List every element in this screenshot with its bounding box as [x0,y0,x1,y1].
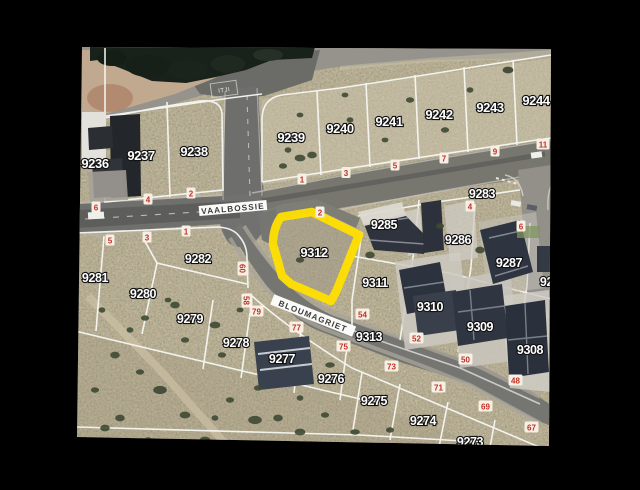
svg-text:77: 77 [292,324,301,333]
svg-text:9280: 9280 [130,287,157,301]
svg-text:69: 69 [481,403,490,412]
svg-text:9242: 9242 [425,107,452,122]
svg-text:9241: 9241 [375,114,402,129]
svg-text:6: 6 [94,204,99,213]
svg-text:9236: 9236 [81,156,108,171]
svg-text:9279: 9279 [177,312,204,326]
svg-text:9244: 9244 [522,93,550,108]
svg-text:9274: 9274 [410,414,437,428]
svg-text:9: 9 [493,148,498,157]
svg-text:11: 11 [539,141,548,150]
svg-text:9287: 9287 [496,256,523,270]
svg-text:60: 60 [238,264,247,273]
svg-text:1: 1 [300,176,305,185]
svg-text:9312: 9312 [300,245,327,260]
svg-text:9275: 9275 [361,394,388,408]
svg-text:7: 7 [442,155,447,164]
svg-text:71: 71 [434,384,443,393]
svg-text:48: 48 [511,377,520,386]
svg-text:9310: 9310 [417,300,444,314]
svg-text:9285: 9285 [371,218,398,232]
svg-text:3: 3 [145,234,150,243]
svg-text:9282: 9282 [185,252,212,266]
svg-text:9240: 9240 [326,121,353,136]
svg-text:9281: 9281 [82,271,109,285]
svg-text:4: 4 [146,196,151,205]
svg-text:9276: 9276 [318,372,345,386]
svg-text:6: 6 [519,223,524,232]
svg-text:3: 3 [344,169,349,178]
svg-text:9277: 9277 [269,352,296,366]
svg-text:9239: 9239 [277,130,304,145]
svg-text:9238: 9238 [180,144,207,159]
svg-text:5: 5 [108,237,113,246]
svg-text:67: 67 [527,424,536,433]
svg-text:9286: 9286 [445,233,472,247]
svg-text:9243: 9243 [476,100,503,115]
svg-text:9309: 9309 [467,320,494,334]
svg-text:9278: 9278 [223,336,250,350]
svg-text:2: 2 [189,190,194,199]
svg-text:52: 52 [412,335,421,344]
svg-text:4: 4 [468,203,473,212]
svg-text:1: 1 [184,228,189,237]
svg-text:50: 50 [461,356,470,365]
svg-text:9313: 9313 [356,330,383,344]
svg-text:79: 79 [252,308,261,317]
svg-text:73: 73 [387,363,396,372]
svg-text:9308: 9308 [517,343,544,357]
svg-text:54: 54 [358,311,367,320]
svg-text:75: 75 [339,343,348,352]
svg-text:9283: 9283 [469,187,496,201]
svg-text:9311: 9311 [362,276,388,290]
svg-text:2: 2 [318,209,323,218]
svg-text:58: 58 [242,296,251,305]
svg-text:9237: 9237 [127,148,154,163]
svg-text:5: 5 [393,162,398,171]
